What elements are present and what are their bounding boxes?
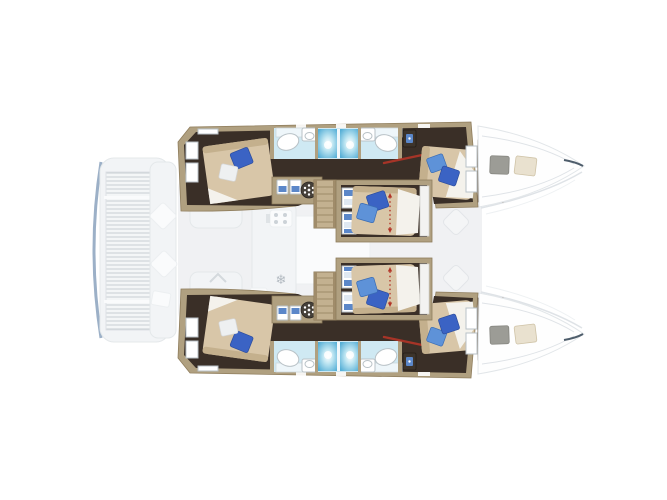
- catamaran-floorplan-image: ❄: [0, 0, 667, 500]
- galley-stove-icon: [266, 210, 292, 227]
- fridge-snowflake-icon: ❄: [276, 273, 287, 288]
- transom-steps: [149, 162, 178, 338]
- floorplan-svg: ❄: [0, 0, 667, 500]
